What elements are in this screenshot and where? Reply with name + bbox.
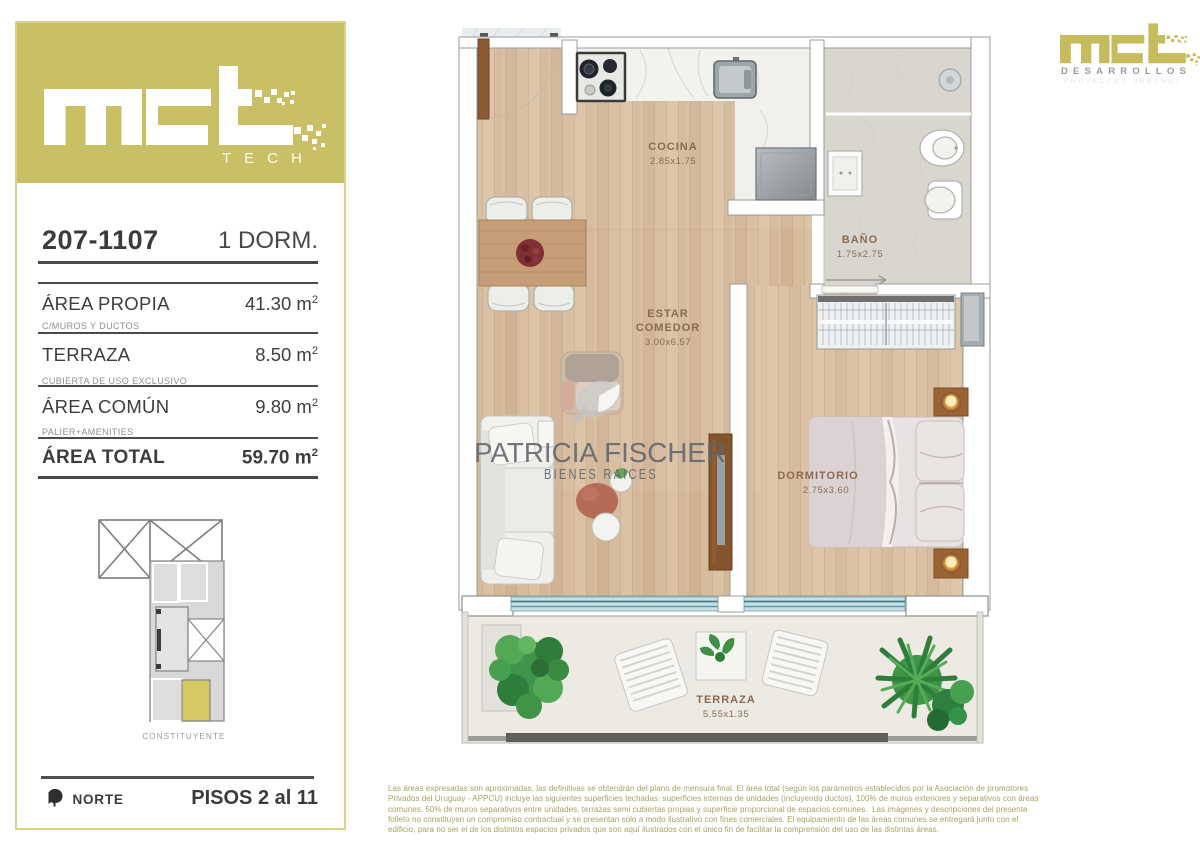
svg-text:TERRAZA: TERRAZA [696,694,756,706]
svg-text:5.55x1.35: 5.55x1.35 [703,709,749,720]
svg-text:2.85x1.75: 2.85x1.75 [650,156,696,167]
svg-text:BAÑO: BAÑO [842,233,878,246]
svg-text:COMEDOR: COMEDOR [636,322,700,334]
svg-text:1.75x2.75: 1.75x2.75 [837,249,883,260]
svg-text:ESTAR: ESTAR [647,308,688,320]
svg-text:3.00x6.57: 3.00x6.57 [645,337,691,348]
svg-text:PROYECTOS URBANOS: PROYECTOS URBANOS [1064,78,1183,85]
svg-text:COCINA: COCINA [648,141,697,153]
svg-text:PATRICIA FISCHER: PATRICIA FISCHER [474,437,726,468]
svg-text:BIENES RAICES: BIENES RAICES [544,466,658,483]
svg-text:DESARROLLOS: DESARROLLOS [1061,66,1191,77]
svg-text:2.75x3.60: 2.75x3.60 [803,485,849,496]
svg-text:DORMITORIO: DORMITORIO [777,470,858,482]
